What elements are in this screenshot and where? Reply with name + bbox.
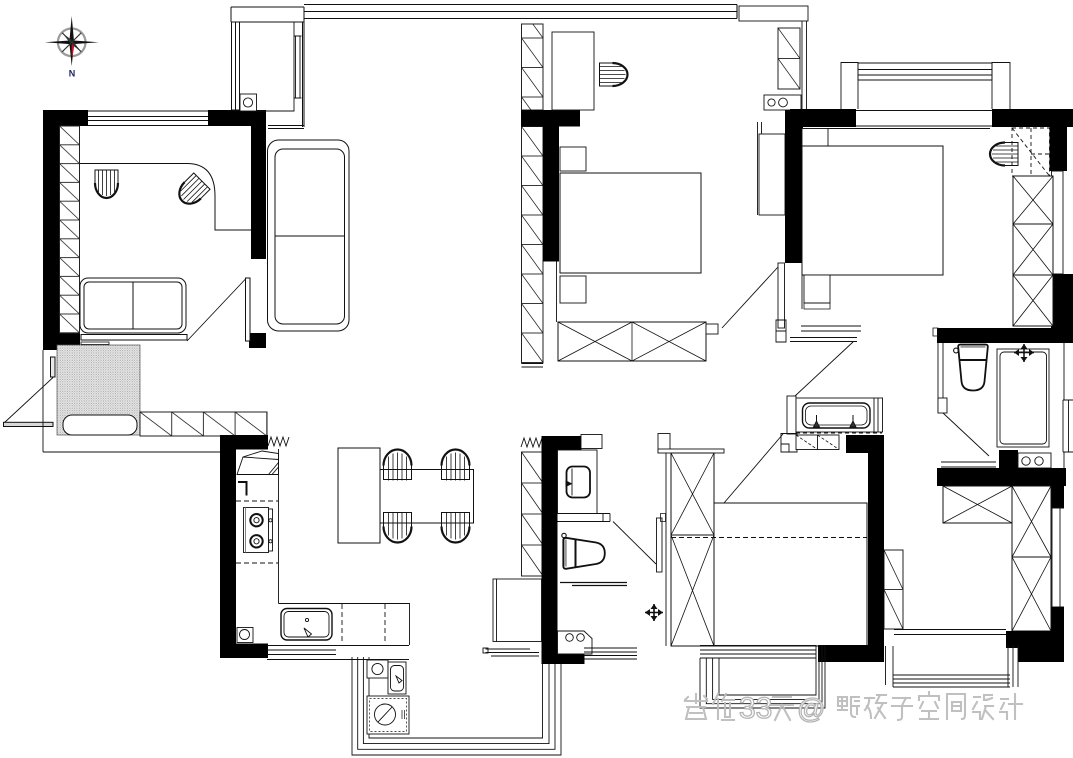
- svg-text:@: @: [797, 693, 825, 724]
- svg-text:33: 33: [739, 692, 772, 725]
- svg-text:N: N: [69, 69, 76, 79]
